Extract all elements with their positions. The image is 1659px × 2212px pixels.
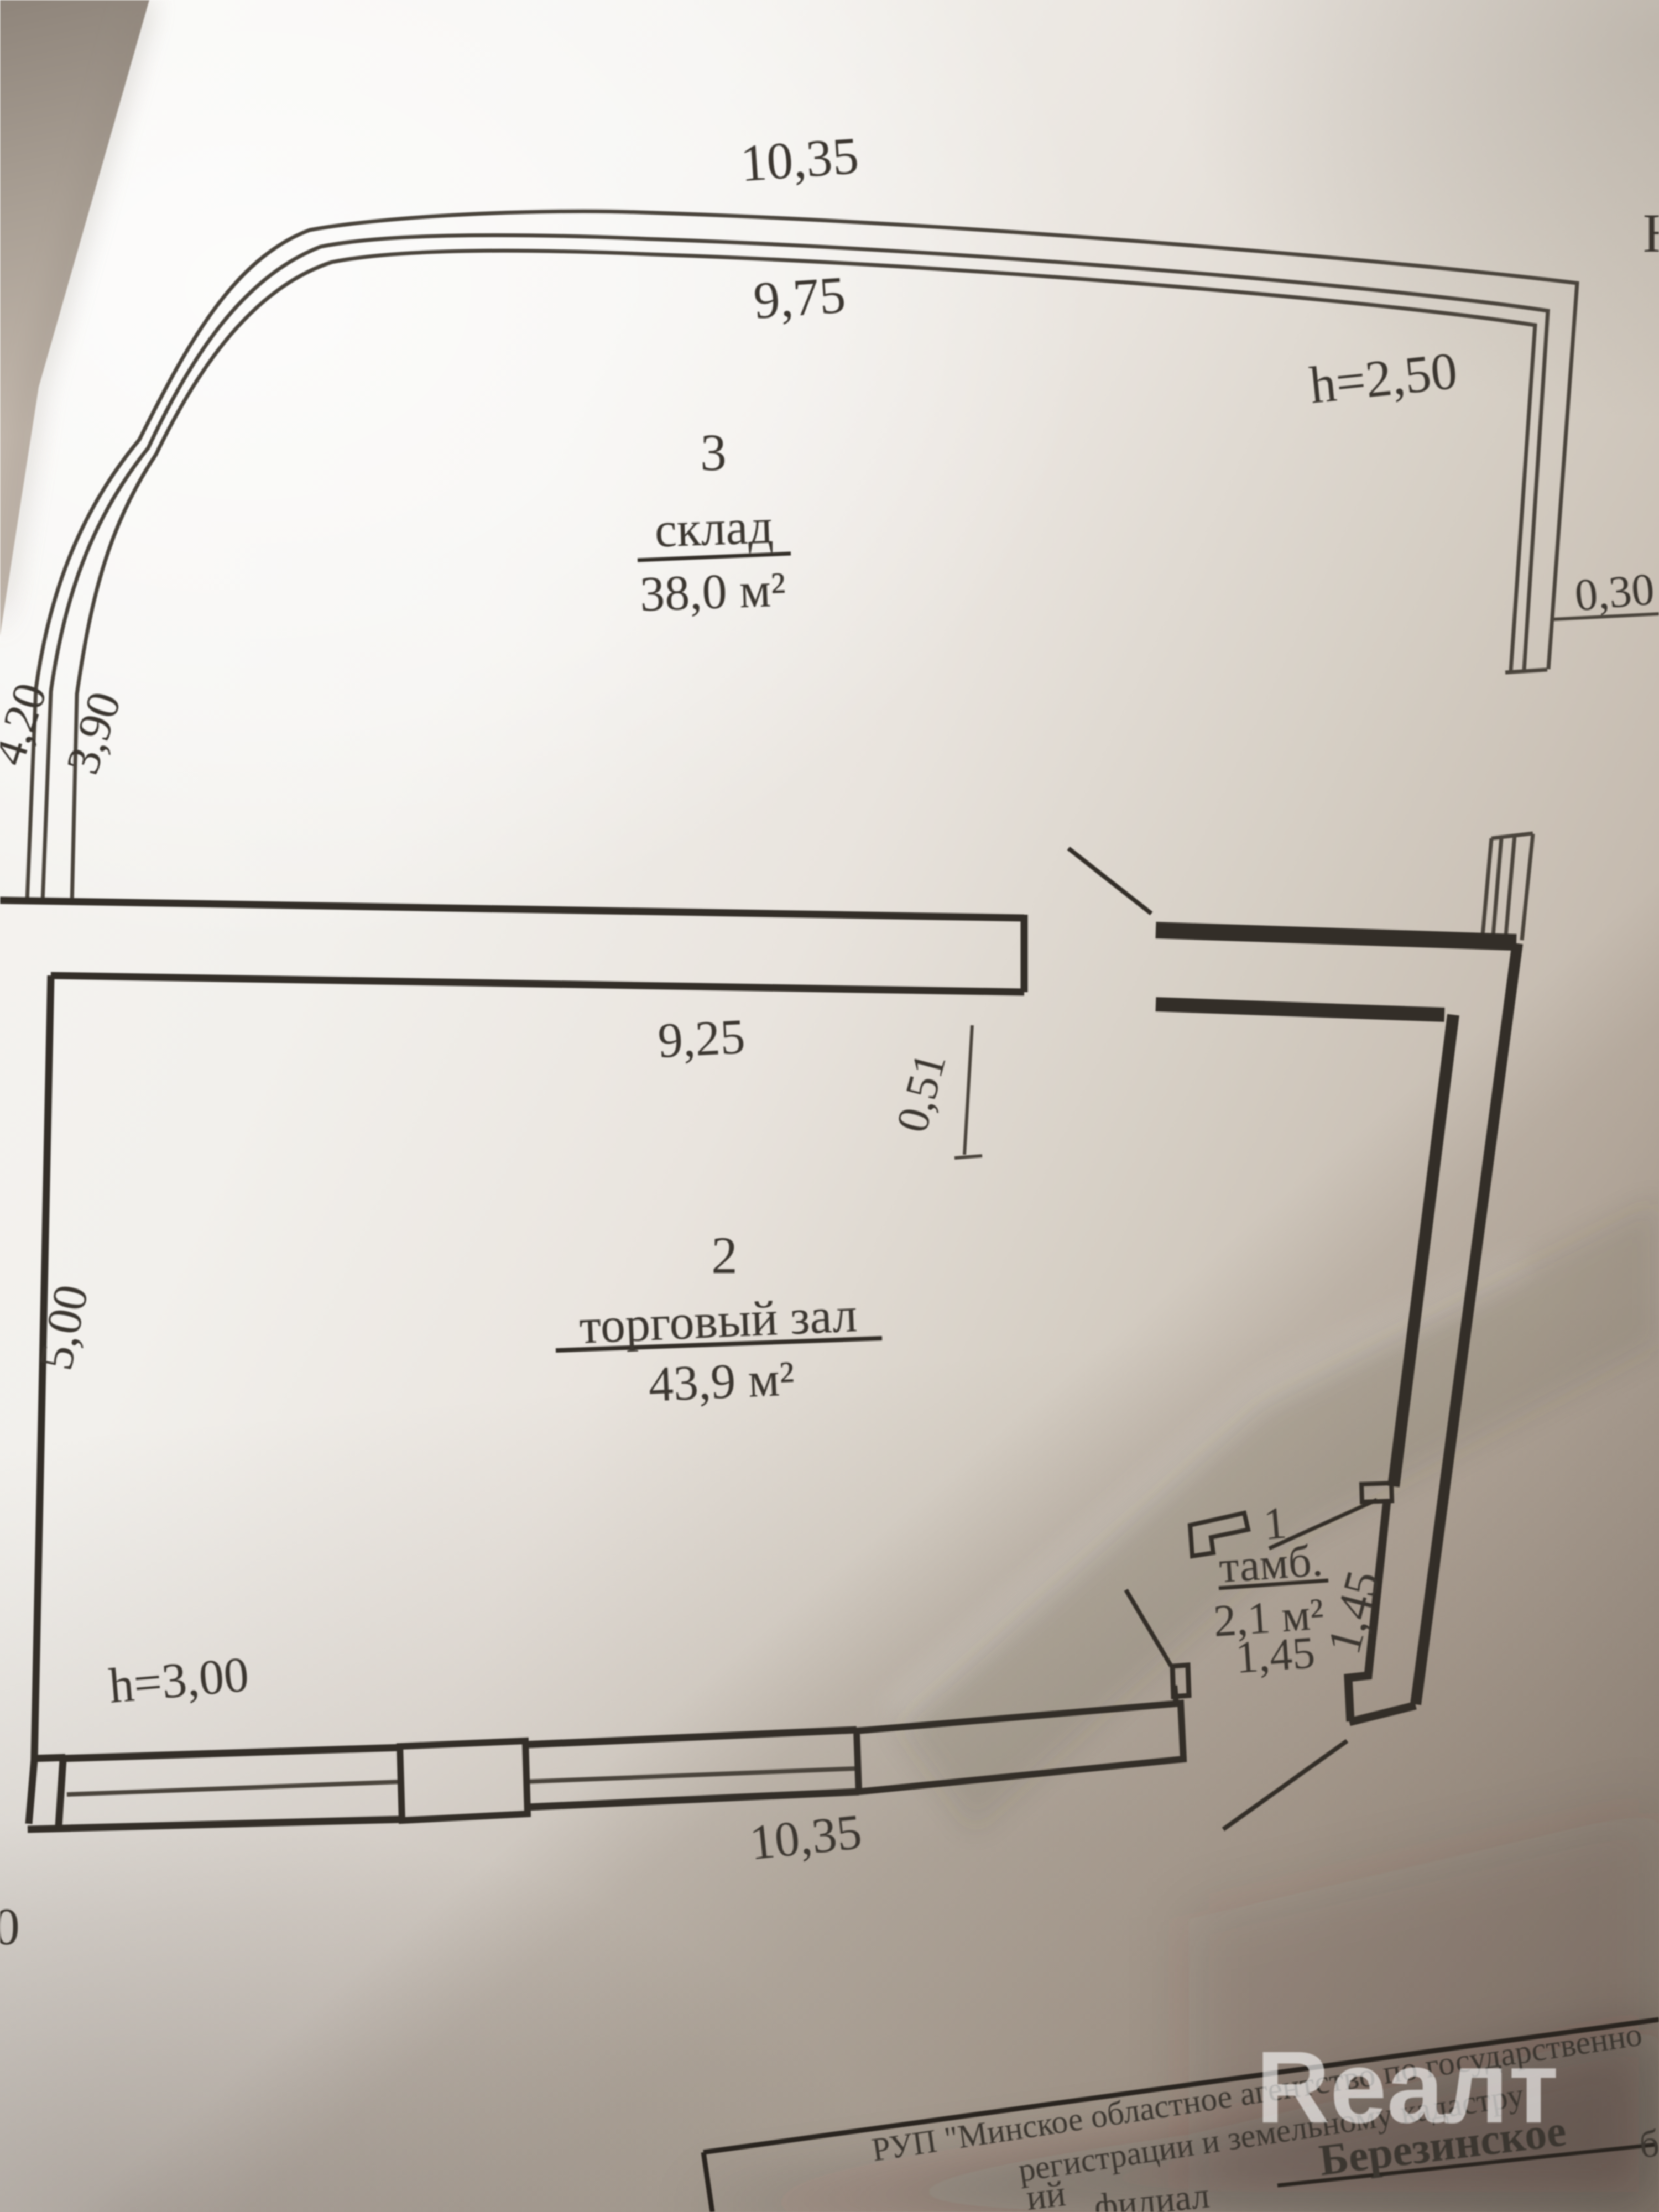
svg-text:10,35: 10,35 [747,1804,864,1871]
svg-text:склад: склад [654,499,774,557]
svg-text:тамб.: тамб. [1217,1535,1324,1593]
svg-text:9,75: 9,75 [752,265,847,330]
svg-text:0,51: 0,51 [886,1048,956,1138]
svg-text:38,0 м²: 38,0 м² [639,562,786,622]
svg-text:Н: Н [1643,202,1659,264]
svg-text:10,35: 10,35 [738,126,860,193]
svg-text:торговый зал: торговый зал [578,1287,858,1354]
svg-text:9,25: 9,25 [656,1009,746,1068]
svg-text:2: 2 [711,1226,738,1285]
svg-text:0,30: 0,30 [1573,564,1656,620]
svg-text:5,00: 5,00 [29,1280,99,1375]
svg-text:43,9 м²: 43,9 м² [648,1351,796,1412]
svg-text:3: 3 [700,423,727,482]
svg-text:h=3,00: h=3,00 [107,1647,251,1714]
svg-text:ий: ий [1024,2173,1068,2212]
svg-text:Reaлт: Reaлт [1256,2031,1559,2145]
svg-text:б: б [1637,2122,1659,2166]
svg-text:0: 0 [0,1897,20,1956]
svg-text:h=2,50: h=2,50 [1307,341,1460,414]
svg-text:1,45: 1,45 [1234,1627,1316,1683]
svg-text:3,90: 3,90 [56,686,131,780]
